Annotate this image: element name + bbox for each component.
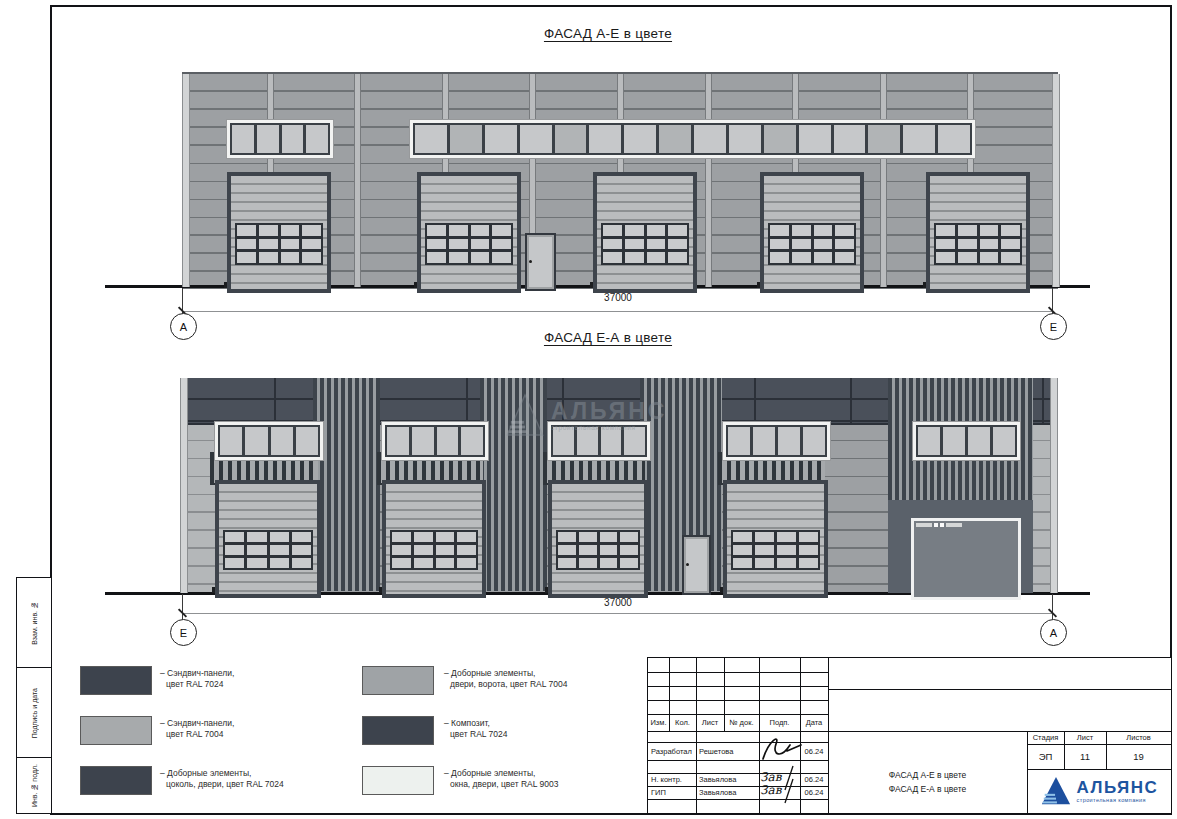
- gate-window-grid: [556, 530, 641, 570]
- tb-stage-header: Стадия: [1027, 731, 1064, 744]
- gate-window-pane: [281, 252, 300, 262]
- gate-window-pane: [414, 558, 433, 568]
- window-pane: [764, 125, 796, 153]
- gate-window-pane: [558, 558, 576, 568]
- gate-window-pane: [579, 532, 597, 542]
- sectional-gate: [227, 172, 331, 293]
- legend-label: – Доборные элементы, двери, ворота, цвет…: [444, 668, 567, 690]
- gate-window-pane: [292, 558, 311, 568]
- gate-window-pane: [600, 558, 618, 568]
- personnel-door: [525, 233, 556, 291]
- gate-window-pane: [457, 532, 476, 542]
- tb-line: [1027, 769, 1171, 770]
- gate-window-pane: [1001, 225, 1020, 235]
- gate-window-pane: [302, 252, 321, 262]
- tb-line: [800, 658, 801, 813]
- window-pane: [918, 427, 940, 455]
- legend-label-line: цвет RAL 7004: [160, 729, 234, 740]
- legend-label: – Доборные элементы, цоколь, двери, цвет…: [160, 768, 284, 790]
- tb-col-kol: Кол.: [669, 714, 696, 731]
- gate-window-pane: [835, 239, 854, 249]
- gate-window-pane: [755, 532, 774, 542]
- gate-window-pane: [980, 239, 999, 249]
- window-pane: [624, 125, 656, 153]
- window-pane: [296, 427, 318, 455]
- sectional-gate: [760, 172, 864, 293]
- sidebox-label: Инв. № подл.: [31, 764, 38, 807]
- sidelight-pane: [946, 523, 962, 527]
- gate-window-pane: [668, 225, 687, 235]
- gate-window-pane: [958, 239, 977, 249]
- gate-window-pane: [471, 239, 490, 249]
- window-pane: [437, 427, 459, 455]
- gate-window-pane: [733, 532, 752, 542]
- entrance-glazing: [911, 518, 1021, 600]
- window-pane: [220, 427, 242, 455]
- window-band: [548, 422, 650, 460]
- tb-col-podp: Подп.: [759, 714, 800, 731]
- gate-window-pane: [436, 532, 455, 542]
- gate-window-pane: [755, 558, 774, 568]
- tb-date: 06.24: [800, 773, 828, 786]
- window-pane: [868, 125, 900, 153]
- gate-window-pane: [958, 225, 977, 235]
- sectional-gate: [382, 480, 486, 598]
- gate-window-pane: [427, 239, 446, 249]
- window-pane: [282, 125, 304, 153]
- gate-window-pane: [647, 225, 666, 235]
- window-pane: [903, 125, 935, 153]
- axis-letter: А: [1050, 627, 1057, 639]
- gate-window-pane: [247, 545, 266, 555]
- facade-bottom-title: ФАСАД Е-А в цвете: [428, 330, 788, 345]
- legend-label-line: – Доборные элементы,: [444, 668, 567, 679]
- corner-trim: [1052, 74, 1060, 287]
- axis-letter: А: [180, 321, 187, 333]
- extension-line: [182, 594, 183, 621]
- tb-doc-title-line: ФАСАД Е-А в цвете: [889, 783, 966, 797]
- axis-marker-right-top: Е: [1040, 313, 1067, 340]
- tb-doc-title-line: ФАСАД А-Е в цвете: [889, 769, 966, 783]
- gate-window-pane: [647, 239, 666, 249]
- gate-window-pane: [247, 532, 266, 542]
- tb-line: [648, 799, 828, 800]
- gate-window-pane: [579, 558, 597, 568]
- gate-window-pane: [620, 558, 638, 568]
- entrance-door-leaf: [934, 523, 938, 527]
- tb-line: [1064, 731, 1065, 769]
- logo-triangle-icon: [1040, 775, 1072, 807]
- gate-window-grid: [390, 530, 478, 570]
- gate-window-pane: [770, 239, 789, 249]
- sectional-gate: [723, 480, 828, 598]
- legend-label-line: – Доборные элементы,: [444, 768, 558, 779]
- window-band: [913, 422, 1020, 460]
- gate-window-pane: [1001, 252, 1020, 262]
- window-band: [723, 422, 830, 460]
- window-pane: [799, 125, 831, 153]
- sectional-gate: [593, 172, 697, 293]
- tb-line: [1027, 744, 1171, 745]
- gate-window-pane: [770, 252, 789, 262]
- tb-line: [1106, 731, 1107, 769]
- gate-window-pane: [427, 225, 446, 235]
- gate-window-pane: [603, 239, 622, 249]
- gate-window-pane: [647, 252, 666, 262]
- gate-window-pane: [792, 225, 811, 235]
- gate-window-pane: [414, 545, 433, 555]
- gate-window-pane: [237, 252, 256, 262]
- gate-window-pane: [259, 239, 278, 249]
- window-pane: [834, 125, 866, 153]
- tb-line: [648, 672, 828, 673]
- window-pane: [232, 125, 254, 153]
- tb-col-izm: Изм.: [648, 714, 669, 731]
- legend-label-line: цвет RAL 7024: [444, 729, 507, 740]
- gate-window-pane: [457, 558, 476, 568]
- gate-window-grid: [223, 530, 313, 570]
- gate-window-pane: [733, 558, 752, 568]
- title-block: Изм. Кол. Лист № док. Подп. Дата Разрабо…: [647, 657, 1172, 814]
- dimension-line: [183, 311, 1053, 312]
- personnel-door: [682, 535, 711, 595]
- window-band: [410, 120, 975, 158]
- extension-line: [1052, 594, 1053, 621]
- window-pane: [412, 427, 434, 455]
- window-pane: [778, 427, 800, 455]
- gate-window-pane: [259, 225, 278, 235]
- facade-a-e-drawing: [182, 72, 1058, 287]
- tb-date: 06.24: [800, 786, 828, 799]
- gate-window-pane: [427, 252, 446, 262]
- tb-sheets-header: Листов: [1106, 731, 1171, 744]
- gate-window-pane: [755, 545, 774, 555]
- axis-marker-left-bottom: Е: [170, 619, 197, 646]
- gate-window-pane: [237, 225, 256, 235]
- gate-window-pane: [777, 545, 796, 555]
- corner-trim: [180, 378, 188, 593]
- facade-e-a-drawing: [180, 378, 1056, 593]
- window-band: [382, 422, 488, 460]
- window-pane: [555, 125, 587, 153]
- tb-line: [759, 658, 760, 813]
- tb-line: [648, 760, 828, 761]
- gate-window-pane: [603, 225, 622, 235]
- gate-window-pane: [270, 545, 289, 555]
- window-band: [227, 120, 333, 158]
- legend-label: – Доборные элементы, окна, двери, цвет R…: [444, 768, 558, 790]
- dimension-line: [183, 613, 1053, 614]
- tb-line: [696, 658, 697, 813]
- gate-window-pane: [799, 558, 818, 568]
- gate-window-pane: [625, 239, 644, 249]
- legend-swatch: [80, 666, 152, 695]
- gate-window-pane: [770, 225, 789, 235]
- column-joint-strip: [705, 74, 712, 287]
- tb-role: ГИП: [648, 786, 699, 799]
- tb-doc-title: ФАСАД А-Е в цвете ФАСАД Е-А в цвете: [828, 758, 1027, 808]
- company-logo: АЛЬЯНС строительная компания: [1027, 769, 1171, 813]
- gate-window-pane: [259, 252, 278, 262]
- window-pane: [938, 125, 970, 153]
- gate-window-pane: [792, 252, 811, 262]
- gate-window-pane: [600, 545, 618, 555]
- window-pane: [271, 427, 293, 455]
- window-pane: [659, 125, 691, 153]
- sectional-gate: [548, 480, 648, 598]
- tb-col-data: Дата: [800, 714, 828, 731]
- logo-name: АЛЬЯНС: [1077, 779, 1159, 796]
- window-band: [215, 422, 323, 460]
- gate-window-pane: [492, 239, 511, 249]
- tb-line: [648, 773, 828, 774]
- legend-label-line: – Сэндвич-панели,: [160, 718, 234, 729]
- column-joint-strip: [354, 74, 361, 287]
- tb-role: Разработал: [648, 742, 699, 760]
- gate-window-pane: [225, 558, 244, 568]
- gate-window-pane: [270, 532, 289, 542]
- window-pane: [257, 125, 279, 153]
- gate-window-pane: [558, 545, 576, 555]
- gate-window-grid: [731, 530, 820, 570]
- gate-window-pane: [835, 252, 854, 262]
- tb-sheet-header: Лист: [1064, 731, 1106, 744]
- legend-swatch: [362, 666, 434, 695]
- window-pane: [601, 427, 622, 455]
- window-pane: [729, 125, 761, 153]
- tb-line: [648, 742, 828, 743]
- gate-window-pane: [471, 252, 490, 262]
- gate-window-pane: [936, 239, 955, 249]
- gate-window-pane: [814, 225, 833, 235]
- window-pane: [415, 125, 447, 153]
- gate-window-pane: [625, 252, 644, 262]
- tb-col-list: Лист: [696, 714, 724, 731]
- gate-window-pane: [1001, 239, 1020, 249]
- tb-sheets-value: 19: [1106, 744, 1171, 769]
- gate-window-pane: [302, 239, 321, 249]
- window-pane: [968, 427, 990, 455]
- gate-window-pane: [777, 532, 796, 542]
- sidebox-label: Взам. инв. №: [31, 602, 38, 645]
- sidebox-inv-podl: Инв. № подл.: [16, 757, 52, 814]
- gate-window-pane: [225, 545, 244, 555]
- gate-window-pane: [492, 225, 511, 235]
- gate-window-pane: [603, 252, 622, 262]
- legend-swatch: [80, 716, 152, 745]
- sectional-gate: [926, 172, 1030, 293]
- gate-window-pane: [668, 252, 687, 262]
- gate-window-pane: [292, 545, 311, 555]
- tb-name: Завьялова: [696, 786, 762, 799]
- tb-name: Завьялова: [696, 773, 762, 786]
- gate-window-pane: [936, 252, 955, 262]
- tb-line: [828, 689, 1171, 690]
- gate-window-grid: [235, 223, 323, 264]
- tb-line: [648, 786, 828, 787]
- sidelight-pane: [916, 523, 932, 527]
- window-pane: [461, 427, 483, 455]
- signature-zavyalova: Зав: [759, 778, 803, 804]
- window-pane: [753, 427, 775, 455]
- legend-label-line: окна, двери, цвет RAL 9003: [444, 779, 558, 790]
- sidebox-vzam-inv: Взам. инв. №: [16, 577, 52, 669]
- gate-window-pane: [436, 558, 455, 568]
- legend-label-line: – Композит,: [444, 718, 507, 729]
- tb-line: [648, 686, 828, 687]
- legend-label-line: – Сэндвич-панели,: [160, 668, 234, 679]
- window-pane: [577, 427, 598, 455]
- gate-window-pane: [792, 239, 811, 249]
- tb-line: [648, 714, 828, 715]
- lamella-column: [313, 378, 380, 591]
- window-pane: [245, 427, 267, 455]
- lamella-column: [480, 378, 547, 591]
- gate-window-pane: [436, 545, 455, 555]
- window-pane: [694, 125, 726, 153]
- tb-line: [648, 731, 1171, 732]
- legend-label: – Композит, цвет RAL 7024: [444, 718, 507, 740]
- gate-window-pane: [835, 225, 854, 235]
- gate-window-pane: [814, 239, 833, 249]
- gate-window-pane: [620, 532, 638, 542]
- facade-top-title: ФАСАД А-Е в цвете: [428, 26, 788, 41]
- gate-window-pane: [449, 239, 468, 249]
- legend-label: – Сэндвич-панели, цвет RAL 7024: [160, 668, 234, 690]
- corner-trim: [182, 74, 190, 287]
- gate-window-grid: [425, 223, 513, 264]
- gate-window-pane: [936, 225, 955, 235]
- dimension-value: 37000: [588, 292, 648, 303]
- sidebox-label: Подпись и дата: [31, 688, 38, 738]
- logo-subtitle: строительная компания: [1077, 797, 1159, 803]
- tb-col-ndok: № док.: [724, 714, 759, 731]
- axis-letter: Е: [180, 627, 187, 639]
- legend-label-line: – Доборные элементы,: [160, 768, 284, 779]
- axis-marker-right-bottom: А: [1040, 619, 1067, 646]
- gate-window-pane: [270, 558, 289, 568]
- gate-window-pane: [579, 545, 597, 555]
- gate-window-pane: [814, 252, 833, 262]
- gate-window-pane: [281, 225, 300, 235]
- gate-window-pane: [225, 532, 244, 542]
- gate-window-pane: [449, 252, 468, 262]
- gate-window-pane: [471, 225, 490, 235]
- tb-line: [724, 658, 725, 731]
- axis-marker-left-top: А: [170, 313, 197, 340]
- tb-role: Н. контр.: [648, 773, 699, 786]
- legend-swatch: [362, 716, 434, 745]
- gate-window-pane: [457, 545, 476, 555]
- corner-trim: [1050, 378, 1058, 593]
- axis-letter: Е: [1050, 321, 1057, 333]
- tb-line: [828, 658, 829, 813]
- window-pane: [553, 427, 574, 455]
- window-pane: [993, 427, 1015, 455]
- gate-window-grid: [601, 223, 689, 264]
- gate-window-pane: [247, 558, 266, 568]
- tb-stage-value: ЭП: [1027, 744, 1064, 769]
- gate-window-pane: [281, 239, 300, 249]
- gate-window-pane: [733, 545, 752, 555]
- gate-window-grid: [934, 223, 1022, 264]
- gate-window-pane: [392, 558, 411, 568]
- window-pane: [943, 427, 965, 455]
- window-pane: [589, 125, 621, 153]
- legend-label-line: цвет RAL 7024: [160, 679, 234, 690]
- gate-window-pane: [492, 252, 511, 262]
- gate-window-pane: [449, 225, 468, 235]
- gate-window-pane: [620, 545, 638, 555]
- window-pane: [624, 427, 645, 455]
- gate-window-pane: [799, 545, 818, 555]
- legend-label: – Сэндвич-панели, цвет RAL 7004: [160, 718, 234, 740]
- gate-window-pane: [668, 239, 687, 249]
- window-pane: [306, 125, 328, 153]
- window-pane: [450, 125, 482, 153]
- gate-window-pane: [958, 252, 977, 262]
- tb-line: [669, 658, 670, 731]
- gate-window-pane: [392, 545, 411, 555]
- gate-window-grid: [768, 223, 856, 264]
- window-pane: [387, 427, 409, 455]
- tb-line: [648, 700, 828, 701]
- gate-window-pane: [980, 252, 999, 262]
- sidebox-podpis-data: Подпись и дата: [16, 667, 52, 759]
- gate-window-pane: [302, 225, 321, 235]
- gate-window-pane: [392, 532, 411, 542]
- entrance-door-leaf: [940, 523, 944, 527]
- gate-window-pane: [237, 239, 256, 249]
- sectional-gate: [215, 480, 321, 598]
- tb-sheet-value: 11: [1064, 744, 1106, 769]
- gate-window-pane: [625, 225, 644, 235]
- window-pane: [520, 125, 552, 153]
- gate-window-pane: [777, 558, 796, 568]
- gate-window-pane: [600, 532, 618, 542]
- legend-label-line: цоколь, двери, цвет RAL 7024: [160, 779, 284, 790]
- tb-name: Решетова: [696, 742, 762, 760]
- legend-swatch: [80, 766, 152, 795]
- gate-window-pane: [292, 532, 311, 542]
- drawing-sheet: Взам. инв. № Подпись и дата Инв. № подл.…: [0, 0, 1177, 819]
- gate-window-pane: [980, 225, 999, 235]
- column-joint-strip: [880, 74, 887, 287]
- window-pane: [803, 427, 825, 455]
- window-pane: [728, 427, 750, 455]
- legend-swatch: [362, 766, 434, 795]
- legend-label-line: двери, ворота, цвет RAL 7004: [444, 679, 567, 690]
- window-pane: [485, 125, 517, 153]
- dimension-value: 37000: [588, 597, 648, 608]
- gate-window-pane: [799, 532, 818, 542]
- sectional-gate: [417, 172, 521, 293]
- gate-window-pane: [558, 532, 576, 542]
- gate-window-pane: [414, 532, 433, 542]
